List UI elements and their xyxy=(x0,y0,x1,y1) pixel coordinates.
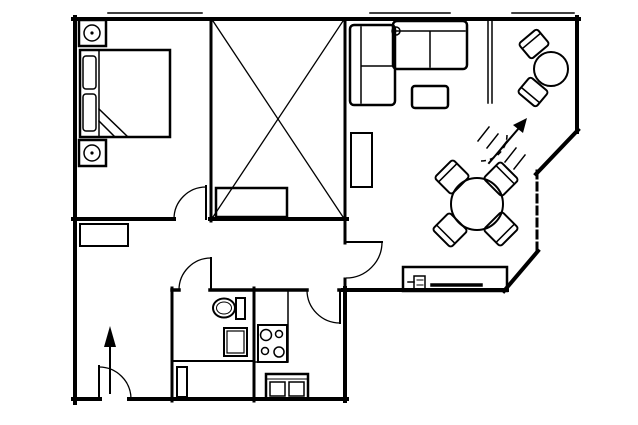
dining-chair-sw xyxy=(432,212,467,247)
floor-plan xyxy=(0,0,638,425)
bedroom-door-arc xyxy=(174,187,206,219)
alcove-chair-nw xyxy=(518,29,549,60)
terrace-arrow-shaft xyxy=(489,128,519,163)
hall-wardrobe xyxy=(80,224,128,246)
closet-chest xyxy=(216,188,287,217)
chair-back xyxy=(437,225,455,243)
wall-right-diagonal xyxy=(536,130,578,174)
dining-chair-nw xyxy=(434,159,469,194)
nightstand-top-dot xyxy=(90,31,93,34)
stove-burner-3 xyxy=(262,348,269,355)
chair-seat xyxy=(434,159,469,194)
floor-plan-svg xyxy=(0,0,638,425)
hall-door-arc xyxy=(346,242,382,278)
stove-burner-1 xyxy=(261,330,272,341)
entry-step-4 xyxy=(505,148,516,162)
toilet-tank xyxy=(236,298,245,319)
side-shelf xyxy=(351,133,372,187)
kitchen-sink-basin-1 xyxy=(270,382,285,396)
toilet-seat xyxy=(217,302,232,314)
washbasin-inner xyxy=(227,331,244,353)
sideboard-icon xyxy=(414,276,425,289)
chair-seat xyxy=(483,161,518,196)
kitchen-sink-basin-2 xyxy=(289,382,304,396)
stove-burner-2 xyxy=(276,331,283,338)
chair-back xyxy=(439,164,457,182)
sofa-section-left xyxy=(350,25,395,105)
entry-arrow-head xyxy=(104,326,116,347)
dining-chair-ne xyxy=(483,161,518,196)
terrace-arrow-head xyxy=(513,118,527,133)
bed-pillow-2 xyxy=(83,94,96,131)
entry-step-2 xyxy=(487,134,498,148)
chair-seat xyxy=(518,29,549,60)
bath-door-arc xyxy=(179,258,211,290)
chair-seat xyxy=(483,211,518,246)
bath-cabinet xyxy=(177,367,187,397)
alcove-chair-sw xyxy=(517,77,548,108)
chair-back xyxy=(521,87,539,102)
kitchen-door-arc xyxy=(307,290,340,323)
sideboard xyxy=(403,267,507,291)
chair-back xyxy=(522,33,540,48)
bed-blanket-fold-2 xyxy=(99,121,115,137)
dining-chair-se xyxy=(483,211,518,246)
stove-burner-4 xyxy=(274,347,284,357)
coffee-table xyxy=(412,86,448,108)
bed-pillow-1 xyxy=(83,56,96,89)
chair-back xyxy=(496,224,514,242)
chair-seat xyxy=(432,212,467,247)
alcove-table xyxy=(534,52,568,86)
entry-step-1 xyxy=(478,127,489,141)
nightstand-bottom-dot xyxy=(90,151,93,154)
chair-back xyxy=(496,166,514,184)
chair-seat xyxy=(517,77,548,108)
wall-right-lower-diagonal xyxy=(504,251,538,291)
bed-blanket-fold-1 xyxy=(99,109,128,137)
entry-step-5 xyxy=(514,155,525,169)
entry-door-arc xyxy=(99,367,131,399)
